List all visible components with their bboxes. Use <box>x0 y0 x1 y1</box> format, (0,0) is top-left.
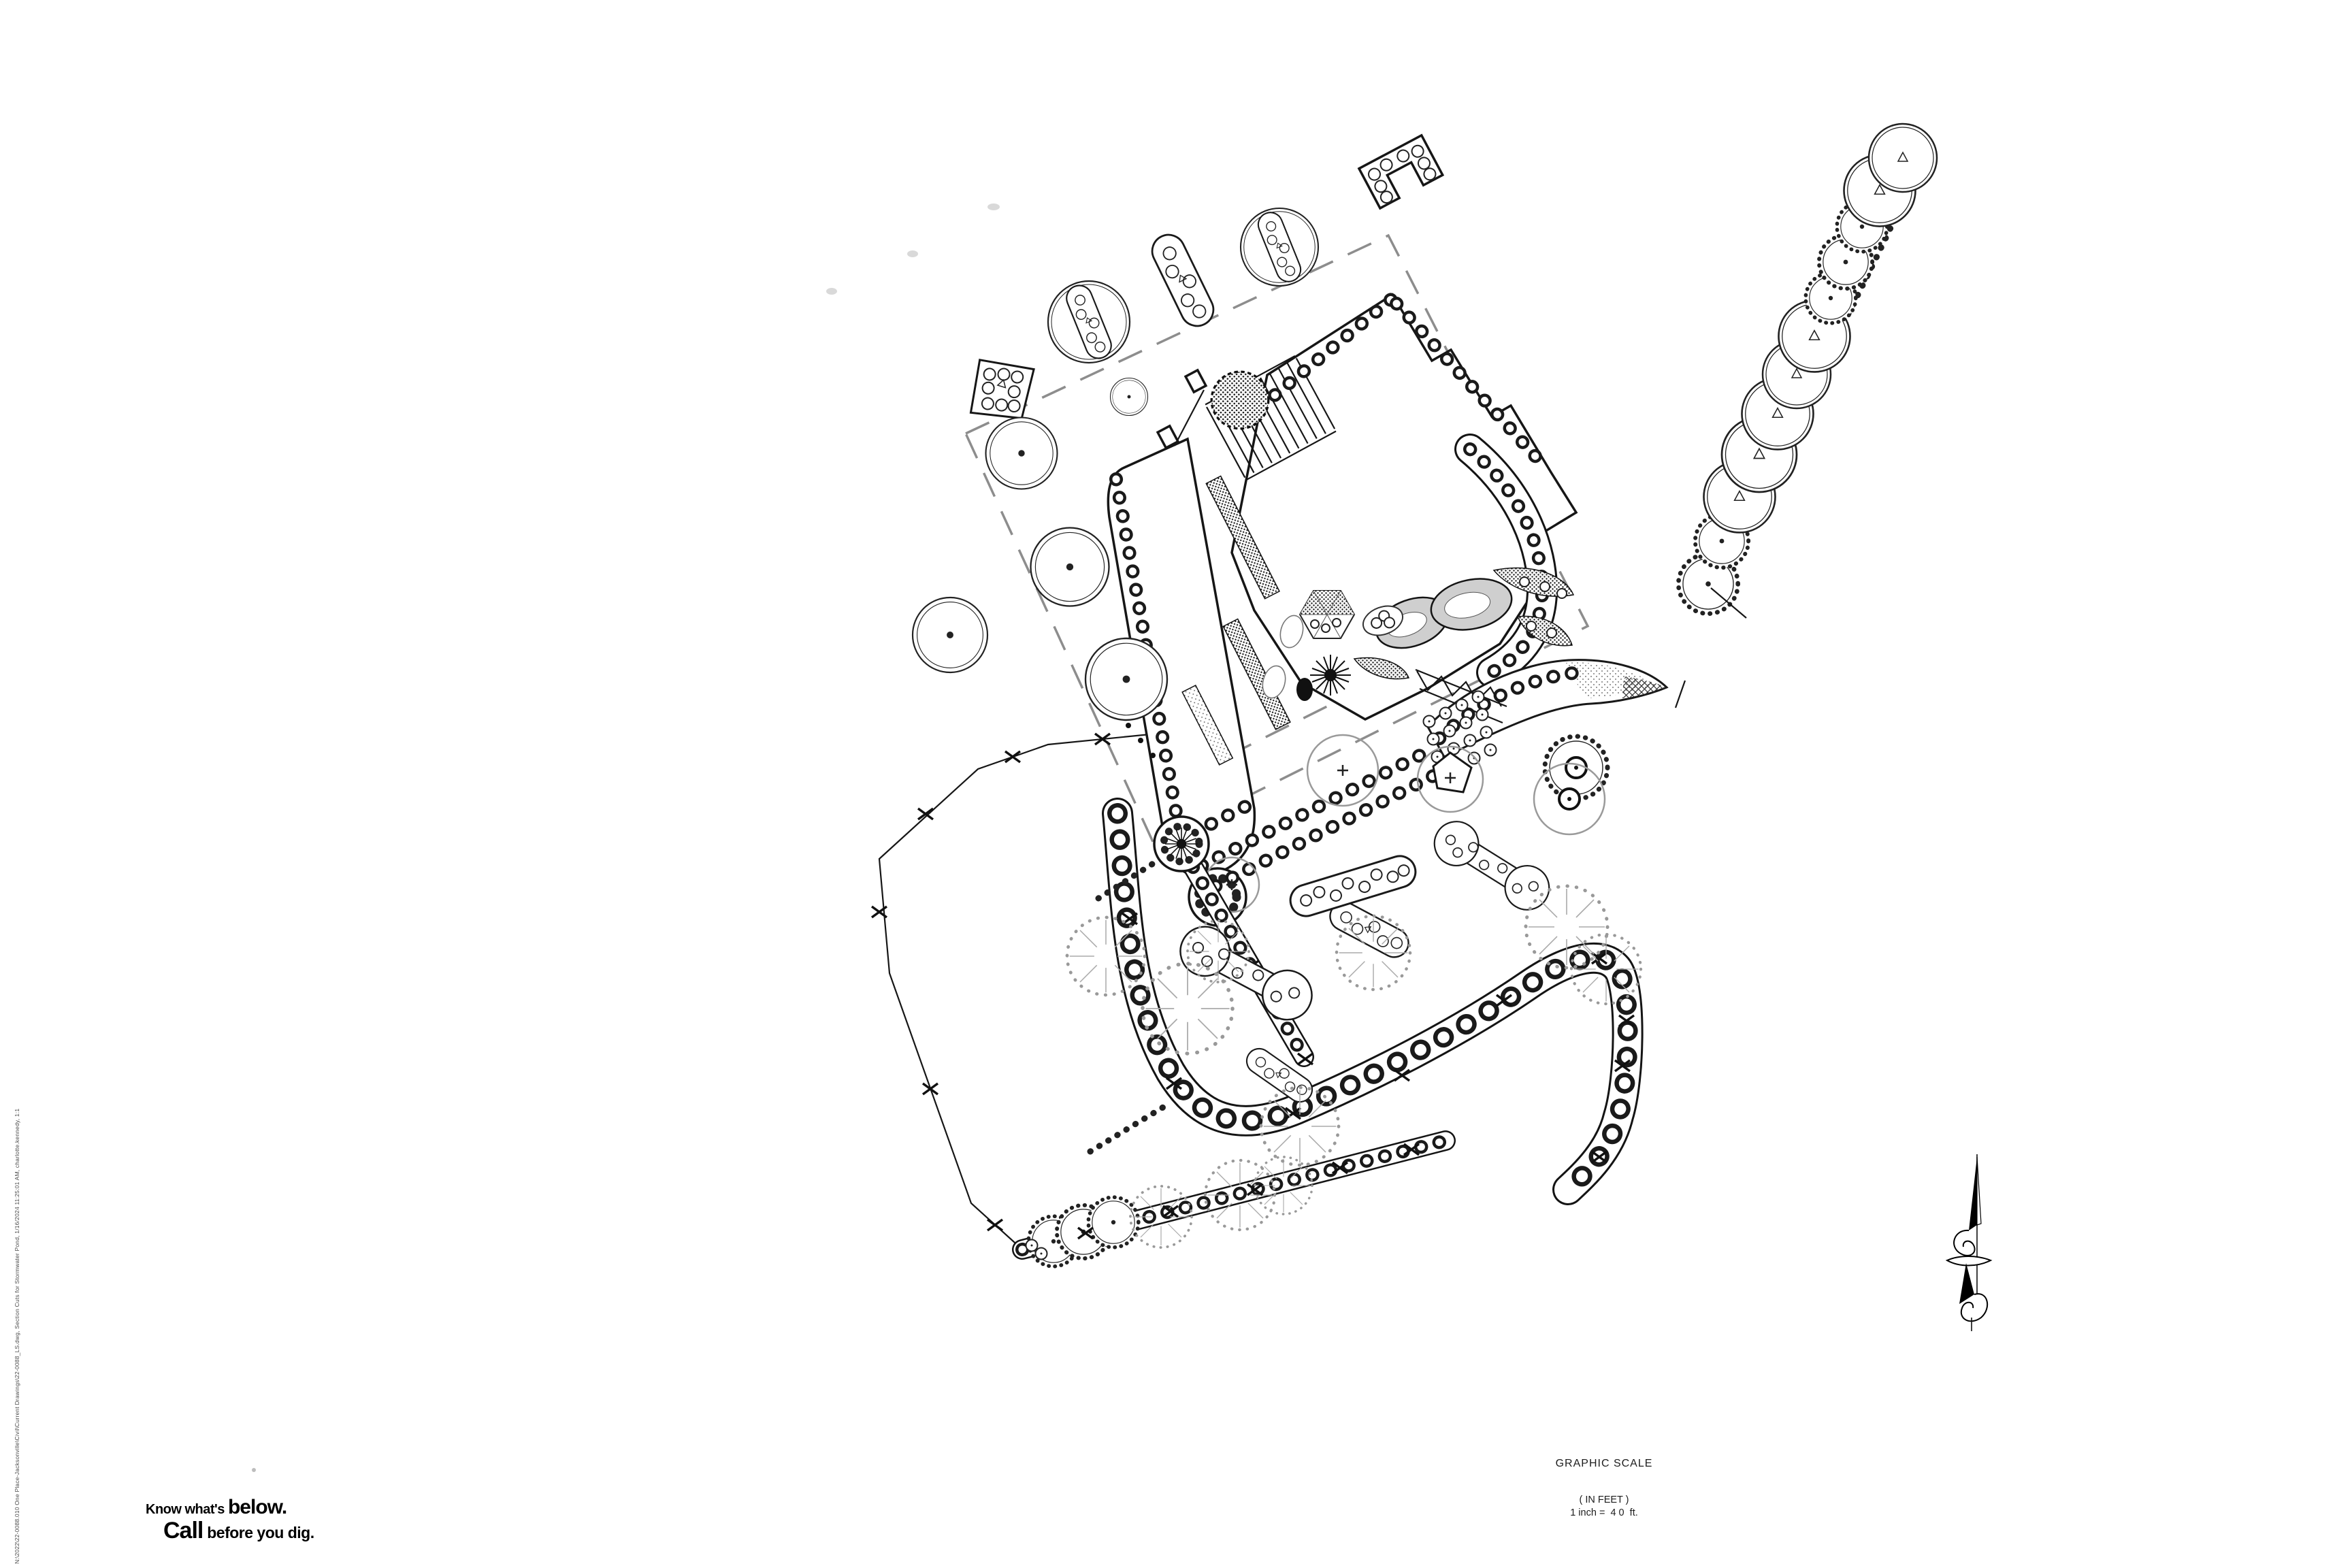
site-plan-drawing <box>0 0 2352 1568</box>
logo-before-text: before you dig. <box>203 1524 314 1541</box>
south-planting-strip <box>1022 1141 1445 1267</box>
logo-line-2: Call before you dig. <box>163 1519 336 1542</box>
shrub-pod <box>1147 229 1219 331</box>
logo-below-text: below. <box>228 1496 287 1518</box>
entry-planting-mass <box>1211 372 1269 429</box>
logo-know-text: Know what's <box>146 1502 228 1517</box>
shrub-pod-circle <box>1048 281 1130 363</box>
tree <box>1085 638 1167 720</box>
call-811-logo: Know what's below. Call before you dig. <box>146 1497 336 1542</box>
buffer-tree-row <box>1678 124 1937 618</box>
faint-artifacts <box>252 203 1000 1472</box>
logo-line-1: Know what's below. <box>146 1497 336 1518</box>
entry-sign-planter <box>1359 135 1443 208</box>
tree <box>986 418 1058 489</box>
shrub-mass <box>1296 678 1313 701</box>
scale-units-label: ( IN FEET ) <box>1550 1494 1659 1505</box>
scale-equation-label: 1 inch = 4 0 ft. <box>1550 1507 1659 1518</box>
logo-call-text: Call <box>163 1518 203 1543</box>
tree <box>1031 528 1109 606</box>
specimen-conifer <box>1310 655 1351 696</box>
square-planter <box>964 353 1036 427</box>
parking-islands <box>1067 736 1641 1165</box>
north-arrow-icon <box>1947 1154 1991 1331</box>
shrub-pod-circle <box>1241 208 1318 286</box>
stair-rail <box>1175 390 1204 446</box>
plot-stamp: N:\2022\22-0088.010 One Place-Jacksonvil… <box>14 1109 20 1564</box>
stair-pier <box>1186 370 1206 392</box>
plan-sheet: GRAPHIC SCALE ( IN FEET ) 1 inch = 4 0 f… <box>0 0 2352 1568</box>
graphic-scale-title: GRAPHIC SCALE <box>1550 1458 1659 1470</box>
tree <box>913 598 987 672</box>
tree <box>1111 378 1148 416</box>
